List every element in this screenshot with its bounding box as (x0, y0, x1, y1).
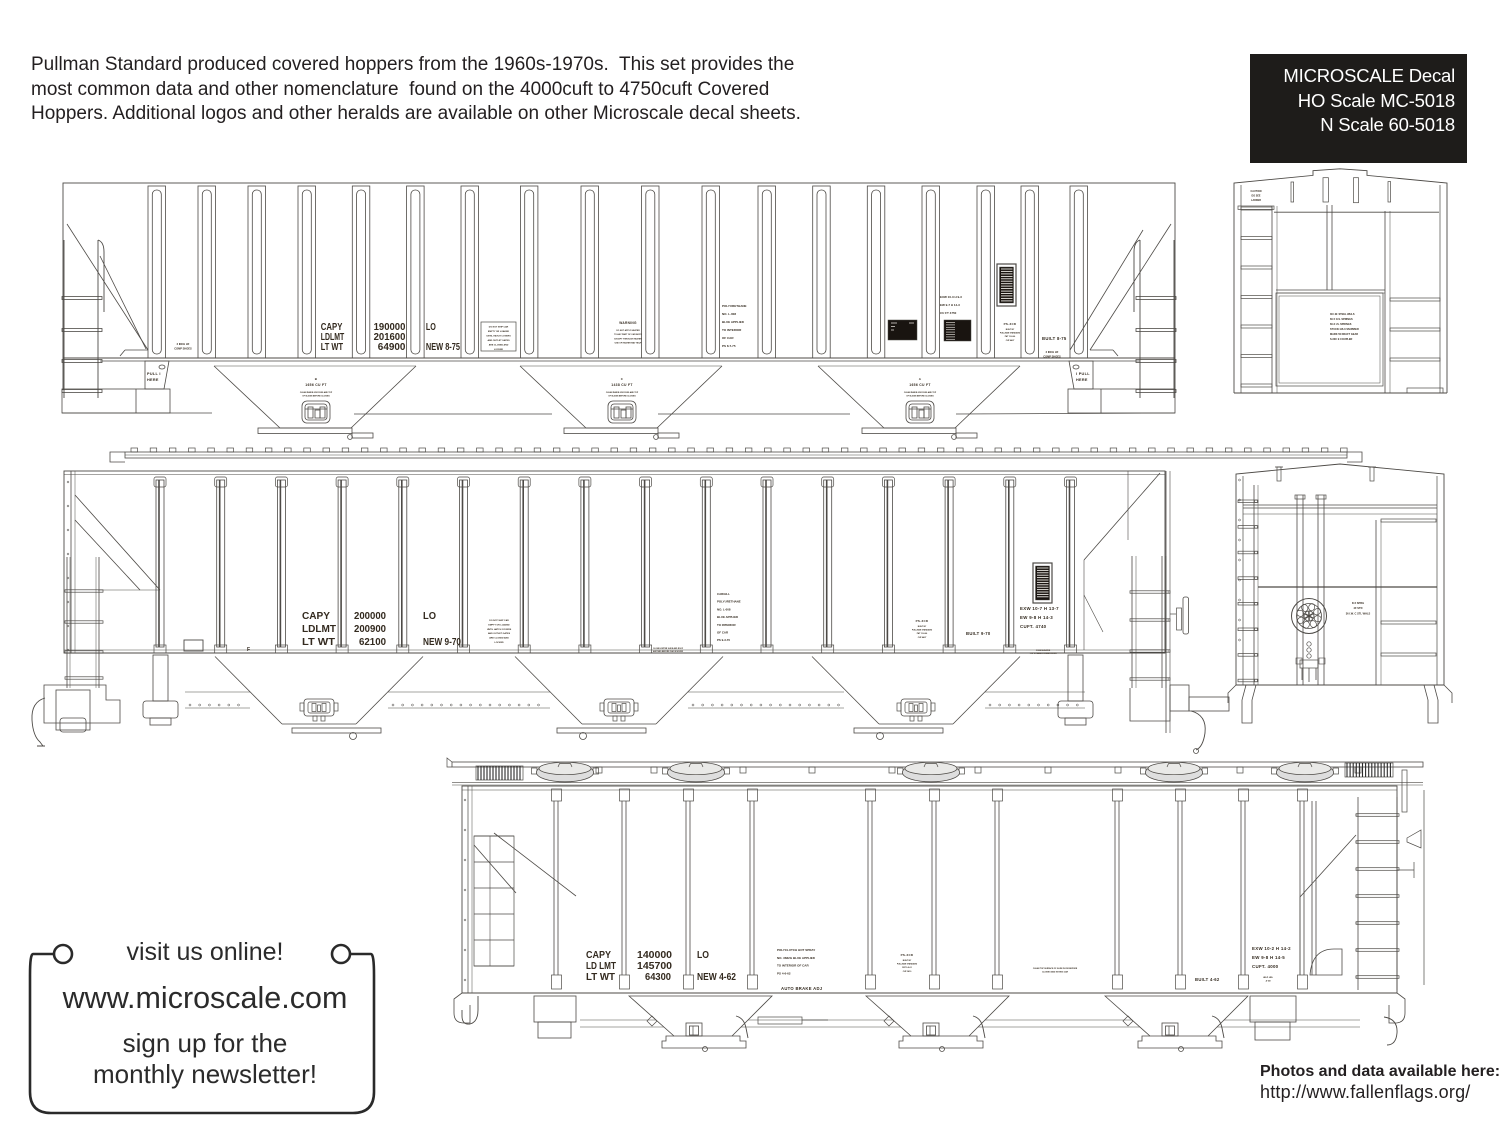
svg-text:EW 9-7 H 14-3: EW 9-7 H 14-3 (940, 303, 960, 307)
svg-text:POLYURETHANE: POLYURETHANE (722, 304, 747, 308)
svg-text:TO INTERIOR: TO INTERIOR (717, 623, 736, 627)
svg-text:60-6 I.S. SPRINGS: 60-6 I.S. SPRINGS (1330, 323, 1352, 326)
svg-text:BUILT 4-62: BUILT 4-62 (1195, 977, 1220, 982)
svg-text:1656 CU FT: 1656 CU FT (305, 383, 327, 387)
svg-text:CAUTION: CAUTION (1251, 190, 1262, 193)
svg-text:AND OUTLET GATES: AND OUTLET GATES (488, 632, 511, 635)
svg-text:PAT 11-8-66: PAT 11-8-66 (1005, 335, 1015, 338)
svg-text:B: B (315, 377, 318, 381)
svg-text:LO: LO (423, 611, 436, 622)
svg-text:BUILT BY: BUILT BY (903, 960, 912, 962)
svg-text:USE OF HEATER MAY HELP: USE OF HEATER MAY HELP (615, 342, 642, 345)
svg-text:HERE: HERE (147, 378, 159, 382)
svg-text:PULLMAN STANDARD: PULLMAN STANDARD (897, 963, 918, 966)
svg-text:OF CAR: OF CAR (717, 631, 729, 635)
svg-text:OF SLIDES BEFORE CLOSING: OF SLIDES BEFORE CLOSING (302, 395, 330, 397)
svg-text:DO NOT SHIP CAR: DO NOT SHIP CAR (489, 619, 509, 622)
svg-text:COMP SHOES: COMP SHOES (1043, 355, 1061, 359)
svg-text:DO NOT APPLY HEATER: DO NOT APPLY HEATER (616, 329, 640, 332)
svg-text:36 I.W. STEEL WHLS: 36 I.W. STEEL WHLS (1330, 313, 1355, 316)
svg-text:60-5 O.S. SPRINGS: 60-5 O.S. SPRINGS (1330, 318, 1353, 321)
svg-text:CLEAN INSIDE GROOVES AND TOP: CLEAN INSIDE GROOVES AND TOP (606, 391, 639, 394)
svg-text:NEW 9-70: NEW 9-70 (423, 637, 461, 648)
svg-text:1656 CU FT: 1656 CU FT (909, 383, 931, 387)
svg-text:CONSOLIDATED: CONSOLIDATED (1036, 649, 1051, 652)
svg-text:CLOSING AND MOVING CAR: CLOSING AND MOVING CAR (1042, 970, 1069, 973)
svg-text:I PULL: I PULL (1076, 372, 1090, 376)
svg-text:CLEAN INSIDE GROOVES AND TOP: CLEAN INSIDE GROOVES AND TOP (904, 391, 937, 394)
svg-text:CUF 4427: CUF 4427 (1006, 339, 1015, 342)
svg-text:CLOSE HOPPER SLIDE AND ROOF: CLOSE HOPPER SLIDE AND ROOF (653, 647, 684, 650)
svg-text:COMP SHOES: COMP SHOES (174, 347, 192, 351)
svg-text:200900: 200900 (354, 624, 386, 635)
svg-text:A TAI: A TAI (1266, 979, 1271, 982)
svg-text:LT WT: LT WT (302, 637, 335, 648)
svg-text:NEW 8-75: NEW 8-75 (426, 342, 460, 353)
svg-text:NO. L-008: NO. L-008 (722, 312, 736, 316)
svg-text:PS-2CD: PS-2CD (901, 953, 914, 957)
svg-text:HATCHES BEFORE CAR IS MOVED: HATCHES BEFORE CAR IS MOVED (653, 650, 684, 653)
svg-text:AND OUTLET GATES: AND OUTLET GATES (487, 339, 510, 342)
svg-text:EMPTY OR LOADED: EMPTY OR LOADED (488, 623, 510, 626)
svg-text:HERE: HERE (1076, 378, 1088, 382)
svg-text:WARNING: WARNING (619, 321, 637, 325)
svg-text:LT WT: LT WT (586, 972, 615, 983)
svg-text:F: F (247, 647, 250, 653)
svg-text:S-60C E COUPLER: S-60C E COUPLER (1330, 338, 1353, 341)
svg-text:NEW 4-62: NEW 4-62 (697, 972, 736, 983)
svg-text:64900: 64900 (378, 342, 406, 353)
svg-text:62100: 62100 (359, 637, 386, 648)
svg-text:STUCKI HS-6 SNUBBER: STUCKI HS-6 SNUBBER (1330, 328, 1359, 331)
svg-text:EXCEPT THROUGH HEATER: EXCEPT THROUGH HEATER (614, 337, 642, 340)
svg-text:PS-3CD: PS-3CD (1004, 322, 1017, 326)
svg-text:LOCKED: LOCKED (494, 642, 504, 644)
svg-text:LD LMT: LD LMT (586, 961, 616, 972)
svg-text:BLUE APPLIED: BLUE APPLIED (722, 320, 745, 324)
svg-text:OF CAR: OF CAR (722, 336, 734, 340)
svg-text:64300: 64300 (645, 972, 671, 983)
svg-text:CAPY: CAPY (586, 950, 611, 961)
svg-text:PS 8-7-75: PS 8-7-75 (722, 344, 736, 348)
svg-text:BLUE APPLIED: BLUE APPLIED (717, 615, 738, 619)
svg-text:EXW 10-3 H 9-3: EXW 10-3 H 9-3 (940, 295, 962, 299)
svg-text:36 I.W. C STL WHLS: 36 I.W. C STL WHLS (1346, 611, 1371, 615)
svg-text:DO NOT SHIP CAR: DO NOT SHIP CAR (489, 326, 509, 329)
svg-text:UNTIL HATCH COVERS: UNTIL HATCH COVERS (486, 335, 511, 338)
svg-text:CU FT 4750: CU FT 4750 (940, 311, 957, 315)
svg-text:1 OF 5 PANELS COMING SOON: 1 OF 5 PANELS COMING SOON (1030, 652, 1058, 655)
svg-text:PS-3CD: PS-3CD (916, 619, 929, 623)
svg-text:C: C (621, 377, 624, 381)
svg-text:POLYURETHANE: POLYURETHANE (717, 600, 741, 604)
svg-text:POLYCLUTCH HOT SPRAY: POLYCLUTCH HOT SPRAY (777, 948, 815, 952)
svg-text:PS 4-6-62: PS 4-6-62 (777, 971, 791, 975)
svg-text:LO: LO (426, 322, 436, 333)
svg-text:EW 9-8 H 14-3: EW 9-8 H 14-3 (1020, 615, 1053, 620)
svg-text:BUILT BY: BUILT BY (1006, 329, 1015, 331)
svg-text:145700: 145700 (637, 961, 672, 972)
svg-text:MARK 50 DRAFT GEAR: MARK 50 DRAFT GEAR (1330, 333, 1358, 336)
svg-text:D-5 SPRG: D-5 SPRG (1352, 601, 1364, 605)
svg-text:AUTO BRAKE ADJ: AUTO BRAKE ADJ (781, 986, 823, 991)
svg-text:EXW 10-7 H 13-7: EXW 10-7 H 13-7 (1020, 606, 1059, 611)
svg-text:CLEAN INSIDE GROOVES AND TOP: CLEAN INSIDE GROOVES AND TOP (300, 391, 333, 394)
svg-text:ARE CLOSED AND: ARE CLOSED AND (489, 344, 509, 347)
svg-text:UNTIL HATCH COVERS: UNTIL HATCH COVERS (487, 628, 512, 631)
svg-text:NO. 3832G BLUE APPLIED: NO. 3832G BLUE APPLIED (777, 956, 816, 960)
svg-text:CUF 4427: CUF 4427 (918, 636, 927, 639)
svg-text:140000: 140000 (637, 950, 672, 961)
svg-text:200000: 200000 (354, 611, 386, 622)
svg-text:LOCKED: LOCKED (494, 349, 504, 351)
svg-text:HELP. HRL: HELP. HRL (1263, 977, 1274, 979)
svg-text:TO ANY PART OF CAR BODY: TO ANY PART OF CAR BODY (614, 333, 642, 336)
svg-text:2 INCH HF: 2 INCH HF (1046, 350, 1059, 354)
svg-text:BUILT 9-70: BUILT 9-70 (966, 631, 991, 636)
svg-text:TO INTERIOR: TO INTERIOR (722, 328, 742, 332)
svg-text:ARE CLOSED AND: ARE CLOSED AND (489, 637, 509, 640)
svg-text:PULLMAN STANDARD: PULLMAN STANDARD (1000, 332, 1021, 335)
svg-text:PAT 9-9-61: PAT 9-9-61 (902, 966, 912, 969)
svg-text:OF SLIDES BEFORE CLOSING: OF SLIDES BEFORE CLOSING (906, 395, 934, 397)
svg-text:EW 9-8 H 14-5: EW 9-8 H 14-5 (1252, 955, 1285, 960)
svg-text:NO. L-008: NO. L-008 (717, 607, 731, 611)
svg-text:EXW 10-2 H 14-2: EXW 10-2 H 14-2 (1252, 946, 1291, 951)
svg-text:OF SLIDES BEFORE CLOSING: OF SLIDES BEFORE CLOSING (608, 395, 636, 397)
svg-text:CUFT. 4000: CUFT. 4000 (1252, 964, 1279, 969)
svg-text:LT WT: LT WT (321, 342, 344, 353)
svg-text:1438 CU FT: 1438 CU FT (611, 383, 633, 387)
svg-text:PULLMAN STANDARD: PULLMAN STANDARD (912, 629, 933, 632)
svg-text:EMPTY OR LOADED: EMPTY OR LOADED (488, 330, 510, 333)
svg-text:PS 9-3-70: PS 9-3-70 (717, 638, 730, 642)
svg-text:LDLMT: LDLMT (302, 624, 336, 635)
svg-text:LADDER: LADDER (1251, 199, 1261, 202)
svg-text:A: A (919, 377, 922, 381)
svg-text:PAT 11-8-66: PAT 11-8-66 (917, 632, 927, 635)
svg-text:TO INTERIOR OF CAR: TO INTERIOR OF CAR (777, 964, 809, 968)
svg-text:PULL I: PULL I (147, 372, 161, 376)
svg-text:BUILT 8-75: BUILT 8-75 (1042, 336, 1067, 341)
svg-text:4F STD: 4F STD (1354, 606, 1363, 610)
svg-text:CUFT. 4740: CUFT. 4740 (1020, 624, 1047, 629)
svg-text:BUILT BY: BUILT BY (918, 626, 927, 628)
svg-text:CUF 3410: CUF 3410 (903, 970, 912, 973)
svg-text:CLEAN TOP SURFACE OF SLIDE DO: CLEAN TOP SURFACE OF SLIDE DOOR BEFORE (1033, 967, 1078, 970)
svg-text:2 INCH HF: 2 INCH HF (177, 342, 190, 346)
svg-text:CAPY: CAPY (302, 611, 331, 622)
svg-text:LO: LO (697, 950, 709, 961)
svg-text:DO SEE: DO SEE (1251, 195, 1260, 198)
svg-text:CARGILL: CARGILL (717, 592, 730, 596)
